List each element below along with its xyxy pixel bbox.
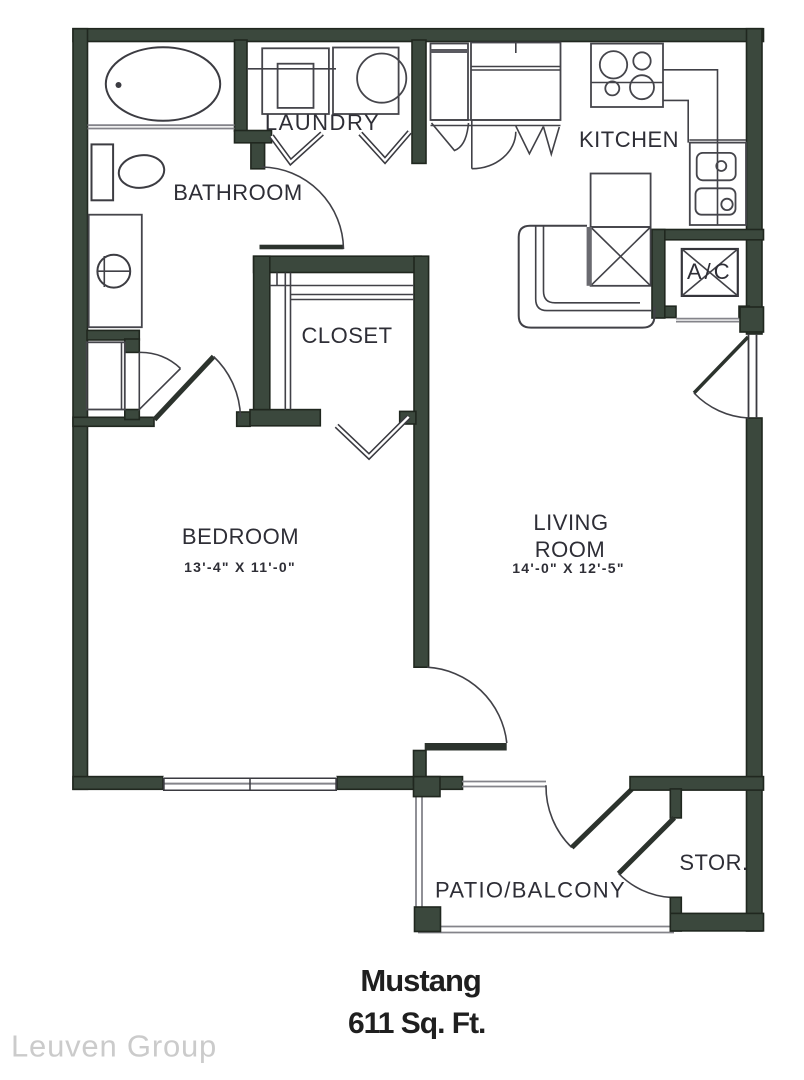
svg-text:Leuven Group: Leuven Group	[11, 1029, 217, 1064]
svg-text:14'-0" X 12'-5": 14'-0" X 12'-5"	[512, 560, 625, 576]
svg-text:BEDROOM: BEDROOM	[182, 524, 299, 549]
svg-text:LIVING: LIVING	[533, 510, 608, 535]
svg-text:Mustang: Mustang	[360, 963, 480, 998]
svg-text:13'-4" X 11'-0": 13'-4" X 11'-0"	[184, 559, 296, 575]
svg-text:LAUNDRY: LAUNDRY	[265, 110, 380, 135]
svg-text:STOR.: STOR.	[679, 850, 748, 875]
svg-text:ROOM: ROOM	[535, 537, 605, 562]
svg-text:611 Sq. Ft.: 611 Sq. Ft.	[348, 1007, 485, 1040]
svg-text:A/C: A/C	[687, 259, 733, 284]
svg-text:KITCHEN: KITCHEN	[579, 127, 679, 152]
svg-text:BATHROOM: BATHROOM	[173, 180, 302, 205]
svg-text:PATIO/BALCONY: PATIO/BALCONY	[435, 878, 626, 903]
svg-text:CLOSET: CLOSET	[301, 323, 392, 348]
